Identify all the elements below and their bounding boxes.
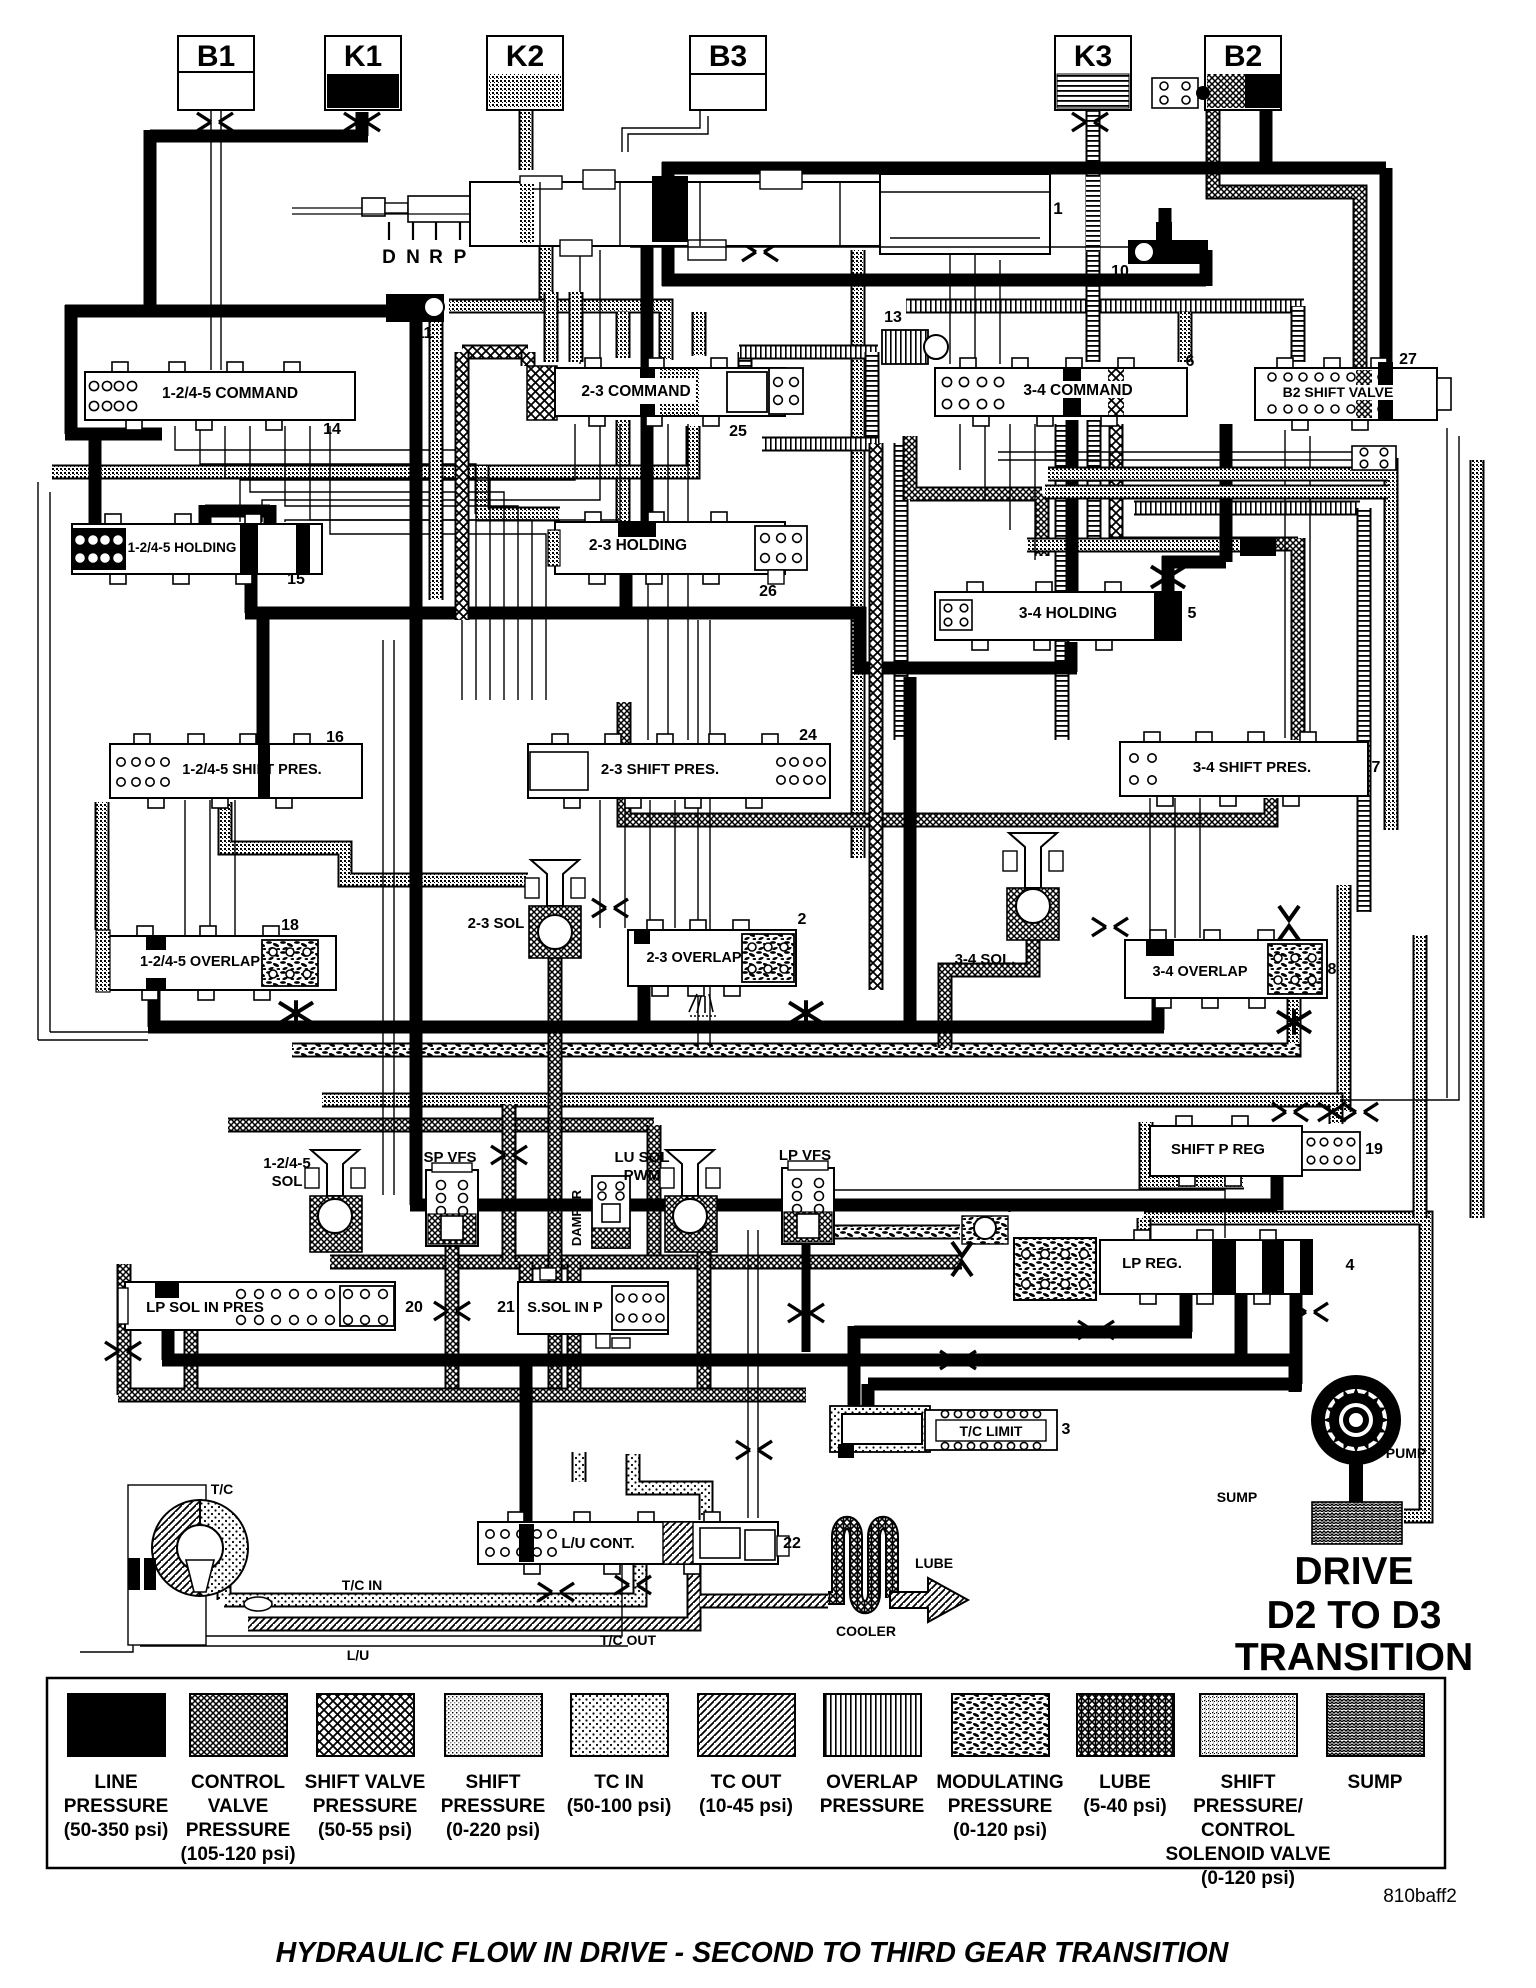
svg-text:PRESSURE: PRESSURE xyxy=(441,1796,546,1817)
svg-text:B2: B2 xyxy=(1224,40,1262,73)
svg-text:(105-120 psi): (105-120 psi) xyxy=(180,1844,295,1865)
svg-text:1-2/4-5 OVERLAP: 1-2/4-5 OVERLAP xyxy=(140,954,260,970)
svg-text:(10-45 psi): (10-45 psi) xyxy=(699,1796,793,1817)
svg-text:(0-220 psi): (0-220 psi) xyxy=(446,1820,540,1841)
svg-text:HYDRAULIC FLOW IN DRIVE - SECO: HYDRAULIC FLOW IN DRIVE - SECOND TO THIR… xyxy=(276,1937,1230,1969)
svg-text:PRESSURE/: PRESSURE/ xyxy=(1193,1796,1304,1817)
svg-text:3: 3 xyxy=(1062,1421,1071,1438)
svg-text:24: 24 xyxy=(799,727,817,744)
svg-text:CONTROL: CONTROL xyxy=(191,1772,285,1793)
svg-text:S.SOL IN P: S.SOL IN P xyxy=(527,1300,603,1316)
svg-text:18: 18 xyxy=(281,917,299,934)
svg-text:22: 22 xyxy=(783,1535,801,1552)
svg-text:PRESSURE: PRESSURE xyxy=(64,1796,169,1817)
svg-text:(50-55 psi): (50-55 psi) xyxy=(318,1820,412,1841)
svg-text:K2: K2 xyxy=(506,40,544,73)
svg-text:PRESSURE: PRESSURE xyxy=(313,1796,418,1817)
svg-text:DAMPER: DAMPER xyxy=(569,1189,584,1246)
svg-text:20: 20 xyxy=(405,1299,423,1316)
svg-text:3-4 SHIFT PRES.: 3-4 SHIFT PRES. xyxy=(1193,759,1311,776)
svg-text:SHIFT P REG: SHIFT P REG xyxy=(1171,1141,1265,1158)
svg-text:810baff2: 810baff2 xyxy=(1383,1886,1457,1907)
svg-text:L/U CONT.: L/U CONT. xyxy=(561,1535,634,1552)
svg-text:15: 15 xyxy=(287,571,305,588)
svg-text:19: 19 xyxy=(1365,1141,1383,1158)
svg-text:N: N xyxy=(406,247,420,268)
svg-text:TRANSITION: TRANSITION xyxy=(1235,1636,1473,1679)
svg-text:16: 16 xyxy=(326,729,344,746)
svg-text:2-3 SHIFT PRES.: 2-3 SHIFT PRES. xyxy=(601,761,719,778)
svg-text:K3: K3 xyxy=(1074,40,1112,73)
svg-text:B1: B1 xyxy=(197,40,235,73)
svg-text:3-4 HOLDING: 3-4 HOLDING xyxy=(1019,605,1117,622)
svg-text:(5-40 psi): (5-40 psi) xyxy=(1083,1796,1166,1817)
svg-text:SUMP: SUMP xyxy=(1217,1489,1257,1505)
svg-text:T/C OUT: T/C OUT xyxy=(600,1632,656,1648)
svg-text:B3: B3 xyxy=(709,40,747,73)
svg-text:SUMP: SUMP xyxy=(1348,1772,1403,1793)
svg-text:SHIFT VALVE: SHIFT VALVE xyxy=(305,1772,426,1793)
svg-text:T/C: T/C xyxy=(211,1481,234,1497)
svg-text:21: 21 xyxy=(497,1299,515,1316)
svg-text:3-4 SOL.: 3-4 SOL. xyxy=(955,951,1016,968)
svg-text:1-2/4-5 SHIFT PRES.: 1-2/4-5 SHIFT PRES. xyxy=(182,762,321,778)
svg-text:4: 4 xyxy=(1346,1257,1355,1274)
svg-text:9: 9 xyxy=(1006,1199,1015,1216)
svg-text:SHIFT: SHIFT xyxy=(466,1772,521,1793)
svg-text:27: 27 xyxy=(1399,351,1417,368)
svg-text:LP SOL IN PRES: LP SOL IN PRES xyxy=(146,1299,264,1316)
svg-text:T/C IN: T/C IN xyxy=(342,1577,382,1593)
svg-text:2-3 COMMAND: 2-3 COMMAND xyxy=(581,383,690,400)
svg-text:DRIVE: DRIVE xyxy=(1294,1550,1413,1593)
svg-text:2-3 HOLDING: 2-3 HOLDING xyxy=(589,537,687,554)
svg-text:3-4 COMMAND: 3-4 COMMAND xyxy=(1023,382,1132,399)
svg-text:PRESSURE: PRESSURE xyxy=(820,1796,925,1817)
svg-text:(0-120 psi): (0-120 psi) xyxy=(953,1820,1047,1841)
svg-text:LP REG.: LP REG. xyxy=(1122,1255,1182,1272)
svg-text:10: 10 xyxy=(1111,263,1129,280)
svg-text:PUMP: PUMP xyxy=(1386,1445,1426,1461)
svg-text:(50-100 psi): (50-100 psi) xyxy=(567,1796,672,1817)
svg-text:1: 1 xyxy=(1053,199,1062,218)
svg-text:COOLER: COOLER xyxy=(836,1623,896,1639)
svg-text:LUBE: LUBE xyxy=(1099,1772,1151,1793)
svg-text:2: 2 xyxy=(798,911,807,928)
svg-text:SHIFT: SHIFT xyxy=(1221,1772,1276,1793)
svg-text:2-3 OVERLAP: 2-3 OVERLAP xyxy=(646,950,741,966)
svg-text:TC IN: TC IN xyxy=(594,1772,644,1793)
svg-text:L/U: L/U xyxy=(347,1647,370,1663)
svg-text:T/C LIMIT: T/C LIMIT xyxy=(960,1423,1023,1439)
svg-text:VALVE: VALVE xyxy=(208,1796,269,1817)
svg-text:1-2/4-5 COMMAND: 1-2/4-5 COMMAND xyxy=(162,385,298,402)
svg-text:LUBE: LUBE xyxy=(915,1555,953,1571)
svg-text:PWM: PWM xyxy=(624,1167,661,1184)
svg-text:1-2/4-5 HOLDING: 1-2/4-5 HOLDING xyxy=(128,540,237,555)
svg-text:14: 14 xyxy=(323,421,341,438)
svg-text:5: 5 xyxy=(1188,605,1197,622)
svg-text:(0-120 psi): (0-120 psi) xyxy=(1201,1868,1295,1889)
svg-text:25: 25 xyxy=(729,423,747,440)
svg-text:LU SOL: LU SOL xyxy=(615,1149,670,1166)
svg-text:PRESSURE: PRESSURE xyxy=(948,1796,1053,1817)
svg-text:11: 11 xyxy=(416,325,433,342)
svg-text:MODULATING: MODULATING xyxy=(936,1772,1063,1793)
svg-text:1-2/4-5: 1-2/4-5 xyxy=(263,1155,311,1172)
svg-text:SOLENOID VALVE: SOLENOID VALVE xyxy=(1165,1844,1330,1865)
svg-text:K1: K1 xyxy=(344,40,382,73)
svg-text:CONTROL: CONTROL xyxy=(1201,1820,1295,1841)
svg-text:2-3 SOL: 2-3 SOL xyxy=(468,915,525,932)
svg-text:SOL: SOL xyxy=(272,1173,303,1190)
svg-text:7: 7 xyxy=(1372,759,1381,776)
svg-text:P: P xyxy=(454,247,467,268)
svg-text:B2 SHIFT VALVE: B2 SHIFT VALVE xyxy=(1283,384,1394,400)
svg-text:(50-350 psi): (50-350 psi) xyxy=(64,1820,169,1841)
svg-text:13: 13 xyxy=(884,309,902,326)
svg-text:6: 6 xyxy=(1186,353,1195,370)
svg-text:26: 26 xyxy=(759,583,777,600)
svg-text:TC OUT: TC OUT xyxy=(711,1772,782,1793)
svg-text:3-4 OVERLAP: 3-4 OVERLAP xyxy=(1152,964,1247,980)
svg-text:OVERLAP: OVERLAP xyxy=(826,1772,918,1793)
svg-text:PRESSURE: PRESSURE xyxy=(186,1820,291,1841)
svg-text:R: R xyxy=(429,247,443,268)
svg-text:D2 TO D3: D2 TO D3 xyxy=(1267,1594,1442,1637)
svg-text:8: 8 xyxy=(1328,961,1337,978)
svg-text:LINE: LINE xyxy=(94,1772,137,1793)
svg-text:D: D xyxy=(382,247,396,268)
